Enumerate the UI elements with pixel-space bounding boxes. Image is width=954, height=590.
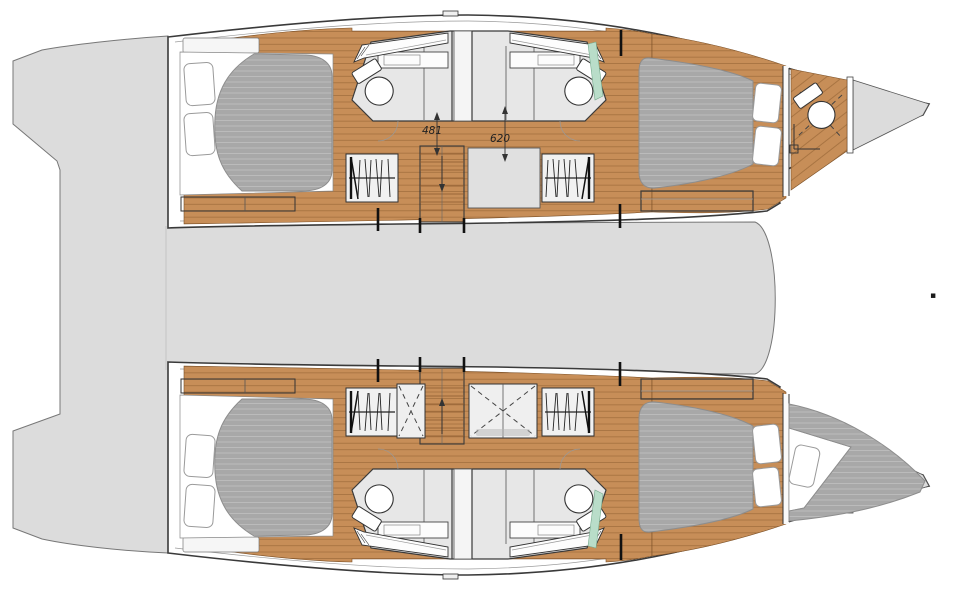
edge-marker-icon: ▪: [930, 291, 936, 301]
starboard-shower-box-small: [397, 384, 425, 438]
floor-plan-drawing: 481 620 ▪: [0, 0, 954, 590]
dimension-label: 481: [422, 125, 442, 137]
catamaran-floor-plan: 481 620 ▪: [0, 0, 954, 590]
starboard-bow-berth: [788, 404, 925, 521]
starboard-shower-box-large: [469, 384, 537, 438]
dimension-label: 620: [490, 133, 510, 145]
port-bow-head-compartment: [790, 69, 847, 190]
